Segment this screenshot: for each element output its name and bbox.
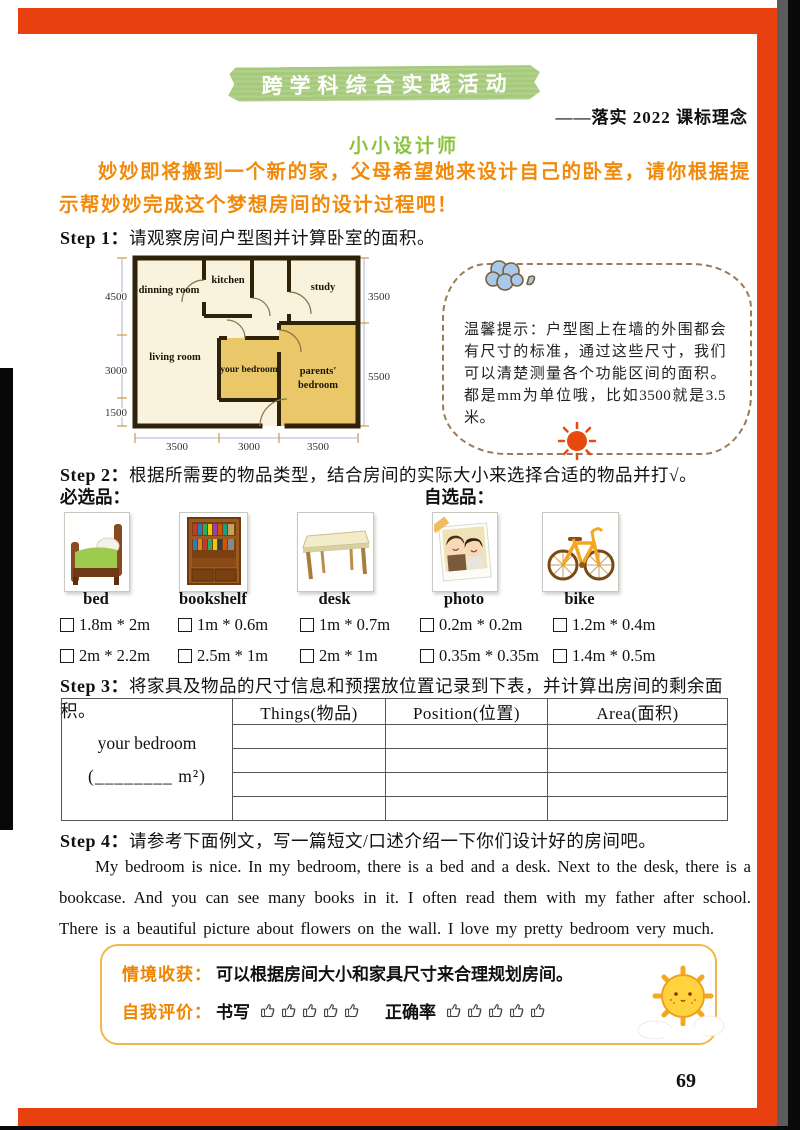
- cloud-icon: [479, 257, 545, 303]
- table-cell[interactable]: [548, 773, 728, 797]
- thumb-up-icon[interactable]: [260, 1002, 277, 1019]
- desk-card: [297, 512, 374, 592]
- size-option: 2m * 2.2m: [60, 646, 150, 666]
- bookshelf-image: [182, 516, 246, 588]
- thumb-up-icon[interactable]: [344, 1002, 361, 1019]
- bike-image: [544, 515, 618, 589]
- sun-icon: [556, 421, 598, 461]
- table-cell[interactable]: [548, 797, 728, 821]
- table-cell[interactable]: [548, 749, 728, 773]
- example-paragraph: My bedroom is nice. In my bedroom, there…: [59, 851, 751, 944]
- optional-items-label: 自选品：: [424, 484, 494, 509]
- step2-text: 根据所需要的物品类型，结合房间的实际大小来选择合适的物品并打√。: [129, 465, 697, 485]
- size-text: 1.8m * 2m: [79, 615, 150, 635]
- size-checkbox[interactable]: [60, 618, 74, 632]
- activity-title: 小小设计师: [60, 131, 748, 158]
- table-cell[interactable]: [386, 725, 548, 749]
- table-cell[interactable]: [233, 725, 386, 749]
- dim-bottom-mid: 3000: [238, 441, 261, 453]
- step2-label: Step 2: [60, 465, 111, 485]
- dim-left-mid: 3000: [105, 365, 128, 377]
- table-row-label: your bedroom (________ m²): [62, 699, 233, 821]
- size-text: 1m * 0.7m: [319, 615, 390, 635]
- step4-text: 请参考下面例文，写一篇短文/口述介绍一下你们设计好的房间吧。: [129, 831, 656, 851]
- self-eval-label: 自我评价：: [122, 998, 212, 1023]
- size-text: 2m * 1m: [319, 646, 378, 666]
- accuracy-label: 正确率: [385, 998, 436, 1023]
- table-cell[interactable]: [233, 797, 386, 821]
- size-text: 1.2m * 0.4m: [572, 615, 655, 635]
- thumb-up-icon[interactable]: [467, 1002, 484, 1019]
- bed-card: [64, 512, 130, 592]
- table-cell[interactable]: [386, 749, 548, 773]
- area-blank: (________ m²): [62, 766, 232, 787]
- column-header-things: Things(物品): [233, 699, 386, 725]
- bedroom-label: your bedroom: [62, 733, 232, 754]
- size-option: 0.35m * 0.35m: [420, 646, 539, 666]
- size-checkbox[interactable]: [300, 618, 314, 632]
- tip-text: 温馨提示：户型图上在墙的外围都会有尺寸的标准，通过这些尺寸，我们可以清楚测量各个…: [464, 319, 726, 429]
- thumb-up-icon[interactable]: [488, 1002, 505, 1019]
- scan-edge-black: [788, 0, 800, 1130]
- table-cell[interactable]: [233, 773, 386, 797]
- sun-cloud-icon: [637, 964, 729, 1044]
- table-cell[interactable]: [386, 797, 548, 821]
- room-label-parents-1: parents': [300, 366, 337, 377]
- tip-bubble: 温馨提示：户型图上在墙的外围都会有尺寸的标准，通过这些尺寸，我们可以清楚测量各个…: [442, 263, 752, 455]
- size-checkbox[interactable]: [60, 649, 74, 663]
- photo-image: [434, 515, 496, 589]
- column-header-position: Position(位置): [386, 699, 548, 725]
- item-label-bed: bed: [64, 589, 128, 609]
- desk-image: [299, 516, 373, 588]
- size-option: 0.2m * 0.2m: [420, 615, 522, 635]
- item-label-desk: desk: [297, 589, 372, 609]
- page-frame-right: [757, 8, 777, 1126]
- size-text: 1m * 0.6m: [197, 615, 268, 635]
- column-header-area: Area(面积): [548, 699, 728, 725]
- page-frame-bottom: [18, 1108, 777, 1126]
- writing-rating: [260, 1002, 361, 1019]
- dim-bottom-right: 3500: [307, 441, 330, 453]
- bike-card: [542, 512, 619, 592]
- size-checkbox[interactable]: [553, 618, 567, 632]
- summary-box: 情境收获： 可以根据房间大小和家具尺寸来合理规划房间。 自我评价： 书写 正确率: [100, 944, 717, 1045]
- self-eval-line: 自我评价： 书写 正确率: [122, 998, 553, 1023]
- step4-label: Step 4: [60, 831, 111, 851]
- writing-label: 书写: [216, 998, 250, 1023]
- required-items-label: 必选品：: [60, 484, 130, 509]
- step4-colon: ：: [111, 831, 130, 851]
- floor-plan: dinning room kitchen study living room y…: [102, 250, 420, 460]
- page-number: 69: [676, 1070, 696, 1093]
- table-cell[interactable]: [233, 749, 386, 773]
- step1-colon: ：: [111, 228, 130, 248]
- room-label-your-bedroom: your bedroom: [220, 365, 278, 375]
- gain-line: 情境收获： 可以根据房间大小和家具尺寸来合理规划房间。: [122, 960, 573, 985]
- size-text: 1.4m * 0.5m: [572, 646, 655, 666]
- step1-label: Step 1: [60, 228, 111, 248]
- size-checkbox[interactable]: [178, 618, 192, 632]
- step2-line: Step 2：根据所需要的物品类型，结合房间的实际大小来选择合适的物品并打√。: [60, 461, 752, 487]
- size-text: 2m * 2.2m: [79, 646, 150, 666]
- thumb-up-icon[interactable]: [446, 1002, 463, 1019]
- room-label-living: living room: [149, 352, 201, 363]
- size-text: 0.2m * 0.2m: [439, 615, 522, 635]
- size-option: 1.8m * 2m: [60, 615, 150, 635]
- dim-right-mid: 5500: [368, 371, 391, 383]
- gain-label: 情境收获：: [122, 960, 212, 985]
- gain-text: 可以根据房间大小和家具尺寸来合理规划房间。: [216, 960, 573, 985]
- dim-bottom-left: 3500: [166, 441, 189, 453]
- photo-card: [432, 512, 498, 592]
- thumb-up-icon[interactable]: [323, 1002, 340, 1019]
- accuracy-rating: [446, 1002, 547, 1019]
- size-option: 1.4m * 0.5m: [553, 646, 655, 666]
- size-option: 2m * 1m: [300, 646, 378, 666]
- size-option: 1m * 0.7m: [300, 615, 390, 635]
- step4-line: Step 4：请参考下面例文，写一篇短文/口述介绍一下你们设计好的房间吧。: [60, 827, 752, 853]
- thumb-up-icon[interactable]: [530, 1002, 547, 1019]
- item-label-bike: bike: [542, 589, 617, 609]
- size-text: 2.5m * 1m: [197, 646, 268, 666]
- size-checkbox[interactable]: [420, 649, 434, 663]
- size-option: 2.5m * 1m: [178, 646, 268, 666]
- scan-bottom-edge: [0, 1126, 800, 1130]
- dim-left-top: 4500: [105, 291, 128, 303]
- step3-label: Step 3: [60, 676, 111, 696]
- step1-text: 请观察房间户型图并计算卧室的面积。: [129, 228, 435, 248]
- item-label-bookshelf: bookshelf: [179, 589, 246, 609]
- step3-colon: ：: [111, 676, 130, 696]
- banner-subtitle: ——落实 2022 课标理念: [450, 103, 748, 128]
- dim-left-bottom: 1500: [105, 407, 128, 419]
- size-checkbox[interactable]: [178, 649, 192, 663]
- record-table: your bedroom (________ m²) Things(物品) Po…: [61, 698, 728, 821]
- room-label-dinning: dinning room: [139, 285, 200, 296]
- thumb-up-icon[interactable]: [302, 1002, 319, 1019]
- room-label-kitchen: kitchen: [211, 275, 244, 286]
- size-option: 1.2m * 0.4m: [553, 615, 655, 635]
- size-text: 0.35m * 0.35m: [439, 646, 539, 666]
- thumb-up-icon[interactable]: [509, 1002, 526, 1019]
- step2-colon: ：: [111, 465, 130, 485]
- dim-right-top: 3500: [368, 291, 391, 303]
- table-cell[interactable]: [386, 773, 548, 797]
- size-checkbox[interactable]: [420, 618, 434, 632]
- room-label-parents-2: bedroom: [298, 380, 338, 391]
- scan-edge-gray: [777, 0, 788, 1130]
- thumb-up-icon[interactable]: [281, 1002, 298, 1019]
- section-banner-title: 跨学科综合实践活动: [254, 67, 513, 100]
- room-label-study: study: [311, 282, 336, 293]
- section-banner: 跨学科综合实践活动: [228, 64, 540, 102]
- step1-line: Step 1：请观察房间户型图并计算卧室的面积。: [60, 224, 752, 250]
- scan-binding-shadow: [0, 368, 13, 830]
- page-frame-top: [18, 8, 777, 34]
- table-cell[interactable]: [548, 725, 728, 749]
- bed-image: [67, 516, 127, 588]
- size-checkbox[interactable]: [553, 649, 567, 663]
- intro-paragraph: 妙妙即将搬到一个新的家，父母希望她来设计自己的卧室，请你根据提示帮妙妙完成这个梦…: [59, 156, 751, 222]
- size-option: 1m * 0.6m: [178, 615, 268, 635]
- item-label-photo: photo: [432, 589, 496, 609]
- bookshelf-card: [179, 512, 248, 592]
- size-checkbox[interactable]: [300, 649, 314, 663]
